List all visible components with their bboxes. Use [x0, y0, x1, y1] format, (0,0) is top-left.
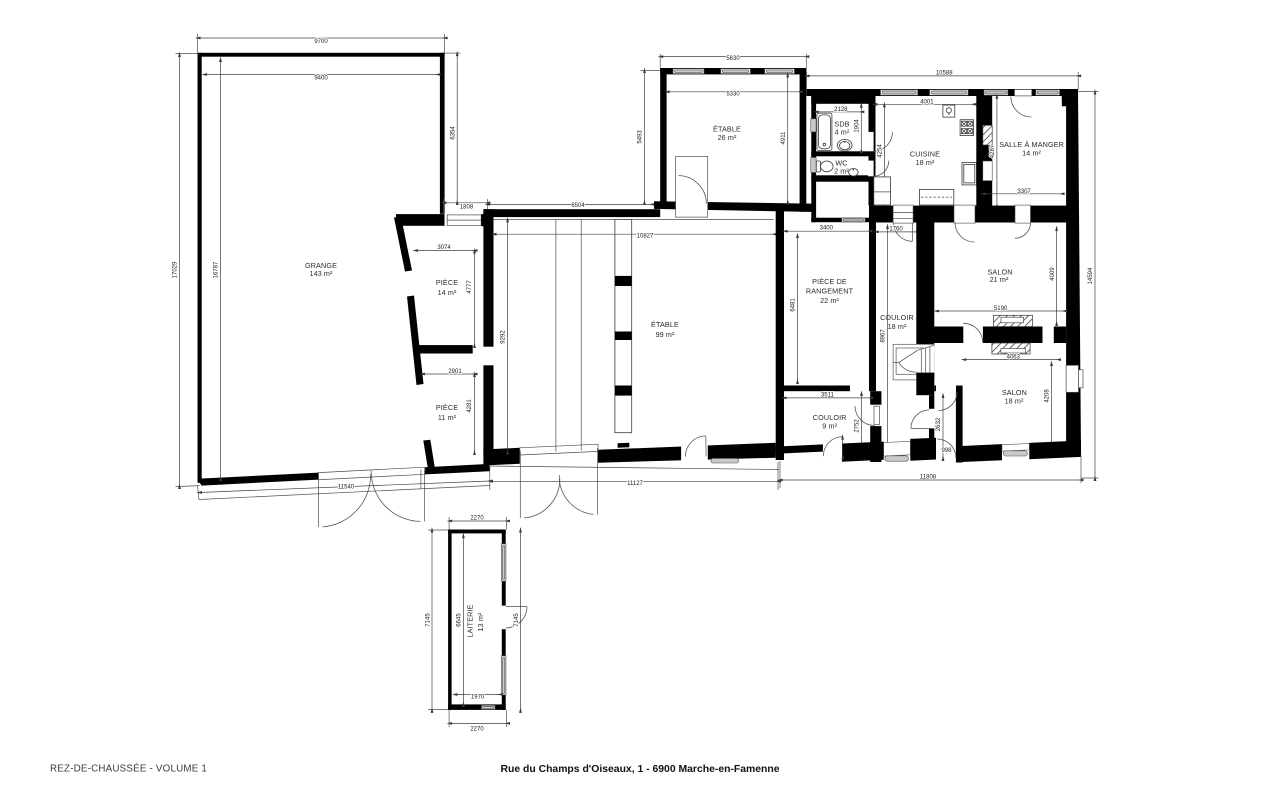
svg-text:7145: 7145: [514, 613, 520, 627]
svg-text:21 m²: 21 m²: [990, 275, 1009, 284]
svg-text:16787: 16787: [214, 261, 220, 278]
svg-text:1904: 1904: [854, 119, 860, 133]
svg-text:6504: 6504: [571, 203, 585, 209]
svg-text:LAITERIE: LAITERIE: [466, 604, 475, 637]
svg-text:4 m²: 4 m²: [835, 127, 850, 136]
svg-text:COULOIR: COULOIR: [813, 413, 847, 422]
svg-text:2632: 2632: [936, 417, 942, 431]
svg-text:ÉTABLE: ÉTABLE: [651, 320, 679, 329]
svg-text:2901: 2901: [448, 369, 462, 375]
svg-text:COULOIR: COULOIR: [880, 313, 914, 322]
svg-text:14 m²: 14 m²: [438, 288, 457, 297]
svg-text:6645: 6645: [457, 613, 463, 627]
svg-text:4911: 4911: [781, 131, 787, 145]
svg-text:14 m²: 14 m²: [1022, 148, 1041, 157]
svg-text:4063: 4063: [1007, 354, 1021, 360]
svg-text:10588: 10588: [936, 70, 953, 76]
svg-text:Rue du Champs d'Oiseaux, 1 - 6: Rue du Champs d'Oiseaux, 1 - 6900 Marche…: [500, 764, 779, 775]
svg-text:18 m²: 18 m²: [916, 158, 935, 167]
svg-text:3400: 3400: [820, 226, 834, 232]
svg-text:14594: 14594: [1088, 267, 1094, 284]
svg-text:PIÈCE: PIÈCE: [436, 403, 458, 412]
svg-text:7145: 7145: [425, 613, 431, 627]
svg-text:10827: 10827: [637, 233, 654, 239]
svg-text:2752: 2752: [855, 419, 861, 433]
svg-text:26 m²: 26 m²: [718, 133, 737, 142]
svg-text:18 m²: 18 m²: [888, 322, 907, 331]
svg-text:9400: 9400: [314, 75, 328, 81]
svg-text:4208: 4208: [1045, 389, 1051, 403]
svg-text:2270: 2270: [470, 516, 484, 522]
svg-text:9700: 9700: [314, 39, 328, 45]
svg-text:RANGEMENT: RANGEMENT: [806, 287, 854, 296]
svg-text:9 m²: 9 m²: [822, 422, 837, 431]
svg-text:3074: 3074: [437, 245, 451, 251]
svg-text:4281: 4281: [467, 399, 473, 413]
svg-text:4254: 4254: [878, 144, 884, 158]
svg-text:3307: 3307: [1017, 189, 1031, 195]
svg-text:22 m²: 22 m²: [820, 296, 839, 305]
svg-text:1760: 1760: [889, 226, 903, 232]
svg-text:17029: 17029: [173, 261, 179, 278]
svg-text:6354: 6354: [450, 126, 456, 140]
svg-text:143 m²: 143 m²: [310, 269, 333, 278]
svg-text:3511: 3511: [821, 393, 835, 399]
svg-text:99 m²: 99 m²: [656, 330, 675, 339]
svg-text:11127: 11127: [627, 481, 643, 487]
svg-text:2270: 2270: [470, 727, 484, 733]
svg-text:1970: 1970: [471, 695, 485, 701]
svg-text:5630: 5630: [726, 56, 740, 62]
svg-text:11540: 11540: [338, 485, 355, 491]
svg-text:6481: 6481: [791, 298, 797, 312]
svg-text:9292: 9292: [501, 330, 507, 344]
svg-text:8967: 8967: [881, 329, 887, 343]
svg-text:REZ-DE-CHAUSSÉE - VOLUME 1: REZ-DE-CHAUSSÉE - VOLUME 1: [50, 764, 207, 775]
svg-text:998: 998: [941, 448, 952, 454]
svg-text:18 m²: 18 m²: [1005, 397, 1024, 406]
svg-text:5330: 5330: [726, 91, 740, 97]
svg-text:5493: 5493: [638, 130, 644, 144]
svg-text:2128: 2128: [834, 107, 848, 113]
svg-text:11808: 11808: [920, 474, 937, 480]
svg-text:4287: 4287: [990, 144, 996, 158]
svg-text:PIÈCE DE: PIÈCE DE: [812, 277, 847, 286]
svg-text:2 m²: 2 m²: [834, 167, 849, 176]
svg-text:13 m²: 13 m²: [476, 612, 485, 631]
svg-text:11 m²: 11 m²: [438, 413, 457, 422]
svg-text:1808: 1808: [460, 204, 474, 210]
svg-text:4009: 4009: [1050, 267, 1056, 281]
svg-text:PIÈCE: PIÈCE: [436, 278, 458, 287]
svg-text:4777: 4777: [467, 280, 473, 294]
svg-text:4001: 4001: [920, 99, 934, 105]
svg-text:5190: 5190: [994, 306, 1008, 312]
svg-text:ÉTABLE: ÉTABLE: [713, 125, 741, 134]
